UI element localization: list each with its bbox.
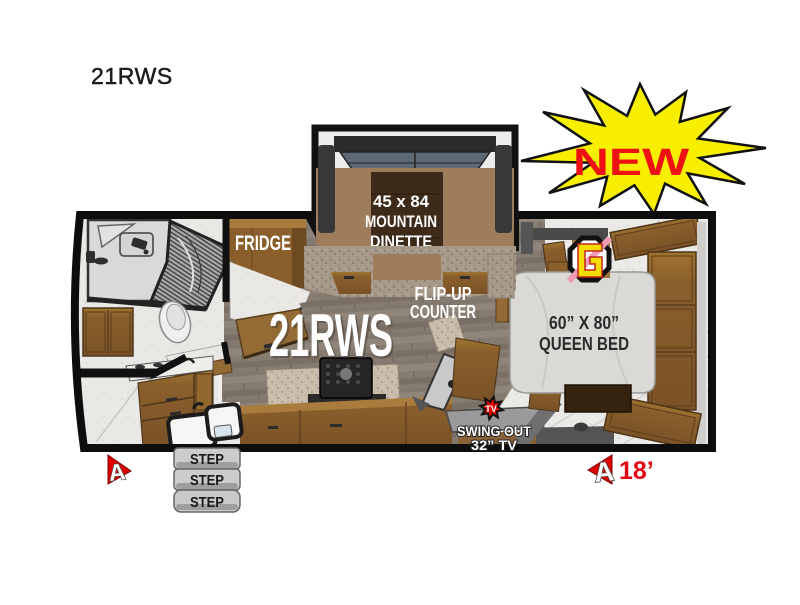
svg-text:TV: TV — [485, 404, 497, 414]
svg-text:STEP: STEP — [190, 451, 224, 468]
svg-text:STEP: STEP — [190, 494, 224, 511]
svg-text:COUNTER: COUNTER — [410, 302, 476, 322]
svg-text:A: A — [107, 458, 126, 486]
svg-text:QUEEN BED: QUEEN BED — [539, 334, 629, 354]
svg-text:21RWS: 21RWS — [269, 302, 393, 369]
svg-text:NEW: NEW — [573, 142, 689, 184]
svg-text:FRIDGE: FRIDGE — [235, 232, 291, 255]
svg-text:A: A — [593, 456, 616, 488]
svg-text:32” TV: 32” TV — [471, 437, 518, 453]
svg-text:45 x 84: 45 x 84 — [373, 192, 430, 211]
svg-text:FLIP-UP: FLIP-UP — [415, 284, 472, 304]
svg-text:MOUNTAIN: MOUNTAIN — [365, 212, 437, 231]
svg-text:18’: 18’ — [619, 457, 654, 485]
svg-text:60” X 80”: 60” X 80” — [549, 313, 619, 333]
svg-text:STEP: STEP — [190, 472, 224, 489]
svg-text:21RWS: 21RWS — [91, 63, 173, 89]
